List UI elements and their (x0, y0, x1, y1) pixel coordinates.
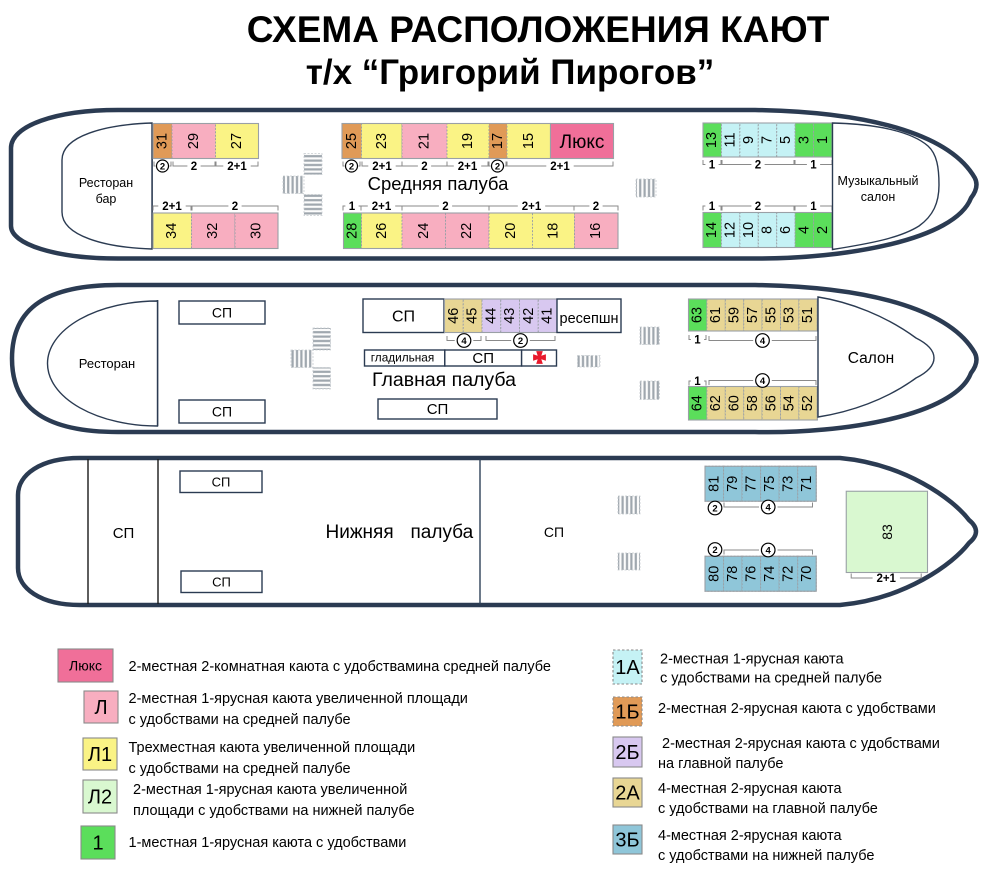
svg-text:5: 5 (778, 136, 794, 144)
svg-text:4: 4 (760, 336, 766, 347)
svg-text:4: 4 (760, 376, 766, 387)
svg-text:24: 24 (416, 223, 432, 239)
svg-text:3Б: 3Б (615, 830, 639, 852)
svg-text:2+1: 2+1 (372, 161, 392, 173)
svg-text:16: 16 (588, 223, 604, 239)
svg-text:2-местная 2-ярусная каюта с уд: 2-местная 2-ярусная каюта с удобствами (662, 736, 940, 752)
svg-text:2+1: 2+1 (227, 161, 247, 173)
svg-text:2: 2 (442, 201, 448, 213)
svg-text:78: 78 (725, 566, 741, 582)
svg-text:ресепшн: ресепшн (560, 311, 619, 327)
svg-text:46: 46 (446, 308, 462, 324)
svg-text:СП: СП (427, 401, 449, 418)
svg-text:СП: СП (212, 574, 231, 589)
svg-text:Ресторан: Ресторан (79, 356, 136, 371)
svg-text:45: 45 (465, 308, 481, 324)
svg-text:1-местная 1-ярусная каюта с уд: 1-местная 1-ярусная каюта с удобствами (129, 835, 407, 851)
svg-text:58: 58 (745, 395, 761, 411)
svg-text:28: 28 (345, 223, 361, 239)
svg-text:4: 4 (766, 545, 772, 556)
svg-text:2+1: 2+1 (372, 201, 392, 213)
svg-text:Л: Л (94, 697, 107, 719)
svg-text:8: 8 (760, 226, 776, 234)
svg-text:2+1: 2+1 (550, 161, 570, 173)
svg-text:17: 17 (490, 133, 506, 149)
svg-text:4: 4 (461, 336, 467, 347)
svg-text:с удобствами на нижней палубе: с удобствами на нижней палубе (658, 848, 874, 864)
svg-text:20: 20 (503, 223, 519, 239)
svg-text:77: 77 (743, 476, 759, 492)
svg-text:2: 2 (518, 336, 523, 347)
svg-text:21: 21 (417, 133, 433, 149)
svg-text:с удобствами на средней палубе: с удобствами на средней палубе (129, 761, 351, 777)
svg-text:4: 4 (796, 226, 812, 234)
svg-text:14: 14 (704, 222, 720, 238)
svg-text:18: 18 (546, 223, 562, 239)
svg-text:Главная палуба: Главная палуба (372, 369, 516, 391)
svg-text:2: 2 (755, 160, 761, 172)
svg-text:41: 41 (540, 308, 556, 324)
svg-text:2+1: 2+1 (458, 161, 478, 173)
svg-text:29: 29 (186, 133, 202, 149)
svg-text:Нижняя: Нижняя (326, 522, 394, 543)
svg-text:72: 72 (780, 566, 796, 582)
svg-text:с удобствами на главной палубе: с удобствами на главной палубе (658, 801, 878, 817)
svg-text:1: 1 (349, 201, 356, 213)
svg-text:2-местная 2-комнатная каюта с: 2-местная 2-комнатная каюта с удобствами… (129, 659, 552, 675)
svg-text:СП: СП (113, 525, 135, 542)
svg-text:Средняя палуба: Средняя палуба (368, 173, 509, 194)
svg-text:4-местная 2-ярусная каюта: 4-местная 2-ярусная каюта (658, 828, 842, 844)
svg-text:59: 59 (727, 307, 743, 323)
svg-text:22: 22 (459, 223, 475, 239)
svg-text:15: 15 (521, 133, 537, 149)
svg-text:25: 25 (344, 133, 360, 149)
svg-text:34: 34 (164, 223, 180, 239)
svg-text:СП: СП (212, 403, 232, 419)
svg-text:2+1: 2+1 (522, 201, 542, 213)
svg-text:30: 30 (249, 223, 265, 239)
svg-text:бар: бар (96, 192, 117, 206)
svg-text:т/х “Григорий Пирогов”: т/х “Григорий Пирогов” (306, 53, 715, 92)
svg-text:56: 56 (763, 395, 779, 411)
svg-text:63: 63 (690, 307, 706, 323)
svg-text:42: 42 (521, 308, 537, 324)
svg-text:палуба: палуба (411, 522, 474, 543)
svg-text:2: 2 (712, 545, 717, 556)
svg-text:СП: СП (544, 524, 564, 540)
svg-text:7: 7 (760, 136, 776, 144)
svg-text:27: 27 (229, 133, 245, 149)
svg-text:80: 80 (706, 566, 722, 582)
svg-text:83: 83 (879, 524, 895, 540)
svg-text:31: 31 (155, 133, 171, 149)
svg-text:44: 44 (483, 308, 499, 324)
svg-text:Л2: Л2 (88, 787, 112, 809)
svg-text:Музыкальный: Музыкальный (838, 174, 919, 188)
svg-text:1: 1 (815, 136, 831, 144)
svg-text:1: 1 (709, 201, 716, 213)
svg-text:1Б: 1Б (615, 702, 639, 724)
svg-text:на главной палубе: на главной палубе (658, 756, 784, 772)
svg-text:1: 1 (92, 833, 103, 855)
svg-text:СП: СП (472, 350, 494, 367)
svg-text:9: 9 (741, 136, 757, 144)
svg-text:81: 81 (706, 476, 722, 492)
svg-text:2-местная 1-ярусная каюта увел: 2-местная 1-ярусная каюта увеличенной пл… (129, 691, 468, 707)
svg-text:3: 3 (796, 136, 812, 144)
svg-text:салон: салон (861, 190, 896, 204)
svg-text:64: 64 (690, 395, 706, 411)
svg-text:6: 6 (778, 226, 794, 234)
svg-text:2: 2 (191, 161, 197, 173)
svg-text:Л1: Л1 (88, 744, 112, 766)
svg-text:32: 32 (205, 223, 221, 239)
svg-text:Люкс: Люкс (69, 657, 102, 673)
svg-text:2: 2 (232, 201, 238, 213)
svg-text:52: 52 (800, 395, 816, 411)
svg-text:с удобствами на средней палубе: с удобствами на средней палубе (129, 712, 351, 728)
svg-text:71: 71 (799, 476, 815, 492)
svg-text:Трехместная каюта увеличенной: Трехместная каюта увеличенной площади (129, 740, 416, 756)
svg-text:79: 79 (725, 476, 741, 492)
svg-text:площади с удобствами на нижней: площади с удобствами на нижней палубе (133, 803, 415, 819)
svg-text:1: 1 (694, 376, 701, 388)
svg-text:76: 76 (743, 566, 759, 582)
svg-text:19: 19 (460, 133, 476, 149)
svg-text:2: 2 (160, 161, 165, 172)
svg-text:43: 43 (502, 308, 518, 324)
svg-text:10: 10 (741, 222, 757, 238)
svg-text:СП: СП (392, 308, 415, 325)
svg-text:1: 1 (810, 201, 817, 213)
svg-text:53: 53 (782, 307, 798, 323)
svg-text:4-местная 2-ярусная каюта: 4-местная 2-ярусная каюта (658, 781, 842, 797)
svg-text:60: 60 (727, 395, 743, 411)
svg-text:4: 4 (766, 502, 772, 513)
svg-text:СХЕМА РАСПОЛОЖЕНИЯ КАЮТ: СХЕМА РАСПОЛОЖЕНИЯ КАЮТ (247, 9, 830, 50)
svg-text:51: 51 (800, 307, 816, 323)
svg-text:2+1: 2+1 (876, 573, 896, 585)
svg-text:2А: 2А (615, 783, 640, 805)
svg-text:75: 75 (762, 476, 778, 492)
svg-text:1А: 1А (615, 657, 640, 679)
svg-text:1: 1 (709, 160, 716, 172)
svg-text:61: 61 (708, 307, 724, 323)
svg-text:2: 2 (815, 226, 831, 234)
svg-text:Ресторан: Ресторан (79, 176, 133, 190)
svg-text:62: 62 (708, 395, 724, 411)
svg-text:1: 1 (810, 160, 817, 172)
svg-text:СП: СП (212, 304, 232, 320)
svg-text:2: 2 (495, 161, 500, 172)
svg-text:74: 74 (762, 566, 778, 582)
svg-text:57: 57 (745, 307, 761, 323)
svg-text:2: 2 (421, 161, 427, 173)
svg-text:12: 12 (723, 222, 739, 238)
svg-text:70: 70 (799, 566, 815, 582)
svg-text:73: 73 (780, 476, 796, 492)
svg-text:55: 55 (763, 307, 779, 323)
svg-text:23: 23 (374, 133, 390, 149)
svg-text:гладильная: гладильная (371, 351, 434, 365)
svg-text:СП: СП (212, 474, 231, 489)
svg-text:2-местная 1-ярусная каюта увел: 2-местная 1-ярусная каюта увеличенной (133, 782, 407, 798)
svg-text:2: 2 (712, 503, 717, 514)
svg-text:2-местная 1-ярусная каюта: 2-местная 1-ярусная каюта (660, 652, 844, 668)
svg-text:54: 54 (782, 395, 798, 411)
svg-text:2: 2 (349, 161, 354, 172)
svg-text:2-местная 2-ярусная каюта с уд: 2-местная 2-ярусная каюта с удобствами (658, 701, 936, 717)
svg-text:26: 26 (374, 223, 390, 239)
svg-text:Салон: Салон (848, 350, 894, 367)
svg-text:Люкс: Люкс (560, 132, 605, 153)
svg-text:1: 1 (694, 335, 701, 347)
svg-text:11: 11 (723, 132, 739, 147)
svg-text:13: 13 (704, 132, 720, 148)
svg-text:2: 2 (755, 201, 761, 213)
svg-text:2: 2 (593, 201, 599, 213)
svg-text:с удобствами на средней палубе: с удобствами на средней палубе (660, 671, 882, 687)
svg-text:2+1: 2+1 (162, 201, 182, 213)
svg-text:2Б: 2Б (615, 742, 639, 764)
